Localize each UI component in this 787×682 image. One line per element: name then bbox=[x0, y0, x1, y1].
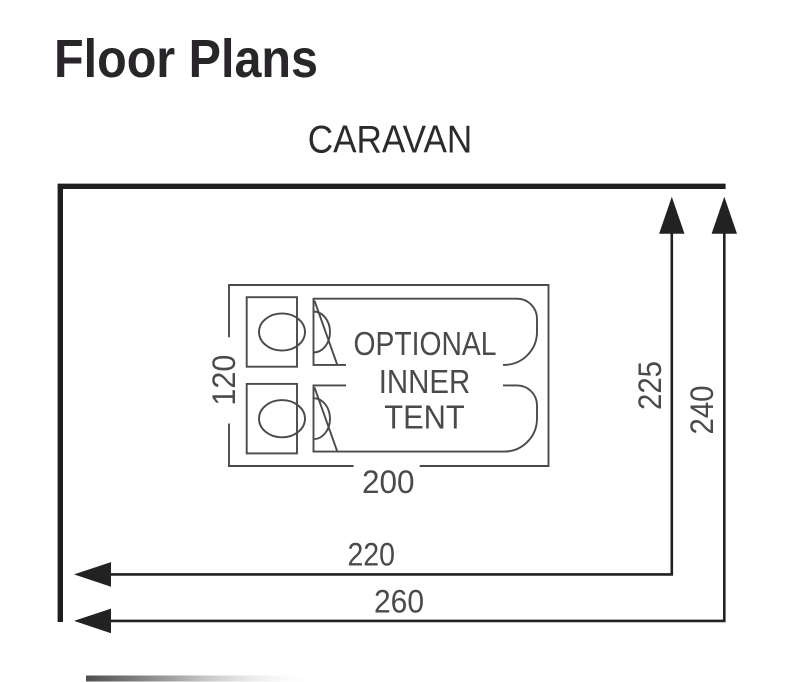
svg-text:CARAVAN: CARAVAN bbox=[308, 119, 473, 162]
svg-text:INNER: INNER bbox=[379, 364, 471, 401]
svg-text:200: 200 bbox=[362, 464, 415, 500]
svg-text:TENT: TENT bbox=[384, 400, 465, 437]
svg-text:260: 260 bbox=[374, 583, 424, 619]
svg-text:225: 225 bbox=[632, 361, 668, 410]
svg-text:240: 240 bbox=[684, 386, 720, 435]
svg-text:220: 220 bbox=[347, 536, 395, 572]
svg-text:Floor Plans: Floor Plans bbox=[54, 29, 318, 89]
svg-text:OPTIONAL: OPTIONAL bbox=[354, 326, 497, 363]
svg-text:120: 120 bbox=[206, 355, 242, 406]
